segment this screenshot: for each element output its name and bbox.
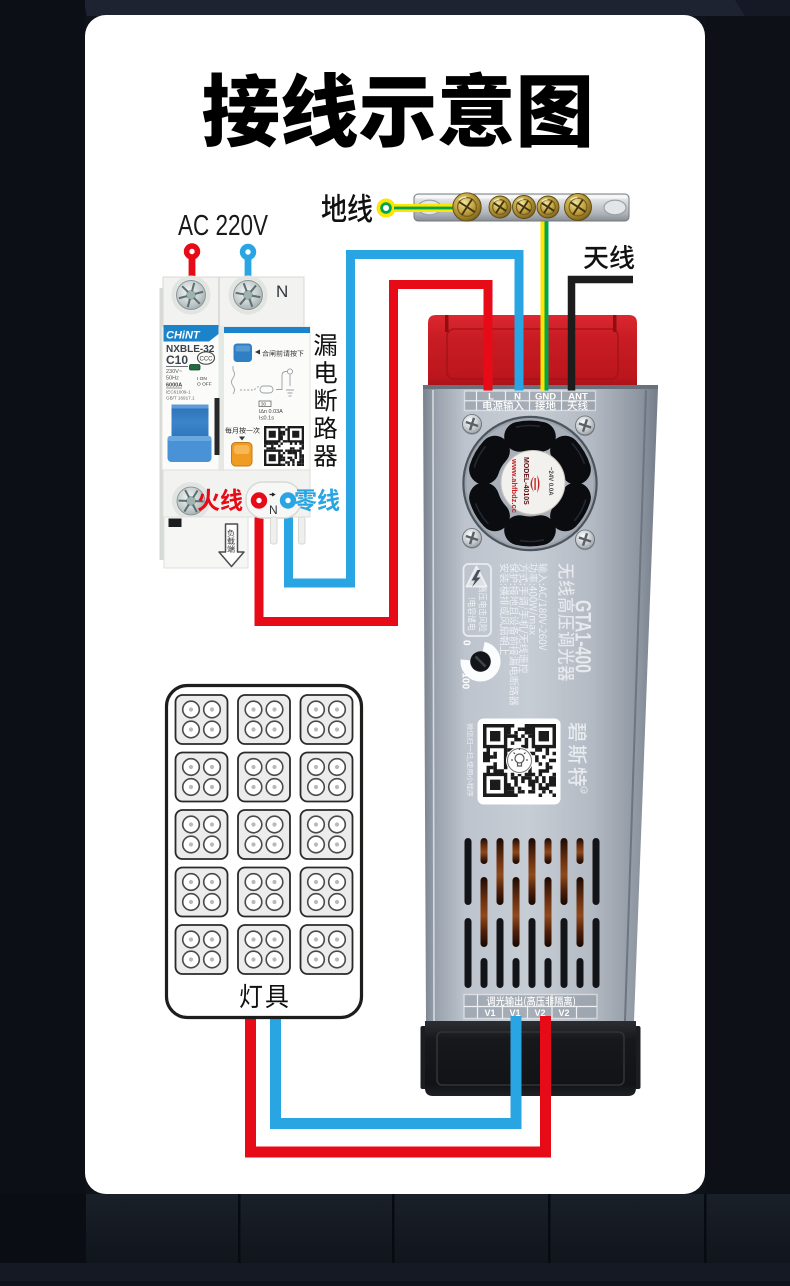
svg-text:I∆n 0.03A: I∆n 0.03A	[259, 409, 283, 415]
svg-text:GTA1-400: GTA1-400	[571, 600, 596, 673]
svg-text:N: N	[276, 282, 288, 301]
svg-text:100: 100	[460, 673, 471, 690]
svg-text:6000A: 6000A	[166, 383, 182, 389]
svg-text:C10: C10	[166, 353, 188, 367]
svg-text:0: 0	[461, 640, 472, 646]
svg-text:N: N	[269, 503, 278, 517]
svg-text:230V~: 230V~	[166, 369, 182, 375]
svg-text:V2: V2	[558, 1008, 569, 1018]
svg-text:N: N	[514, 392, 521, 403]
svg-text:AC 220V: AC 220V	[178, 210, 269, 242]
svg-text:V1: V1	[484, 1008, 495, 1018]
svg-text:50Hz: 50Hz	[166, 376, 179, 382]
svg-text:MODEL-4010S: MODEL-4010S	[522, 457, 529, 505]
svg-text:L: L	[488, 392, 494, 403]
svg-text:IEC61009-1: IEC61009-1	[166, 390, 191, 395]
svg-text:O OFF: O OFF	[197, 382, 212, 388]
svg-text:CHiNT: CHiNT	[166, 330, 201, 342]
svg-text:I ON: I ON	[197, 376, 207, 382]
svg-text:www.ahfbdz.cc: www.ahfbdz.cc	[510, 458, 519, 513]
svg-text:~24V 0.0A: ~24V 0.0A	[547, 467, 553, 496]
svg-text:GB/T 16917.1: GB/T 16917.1	[166, 396, 195, 401]
svg-text:30: 30	[261, 402, 267, 407]
svg-text:I≤0.1s: I≤0.1s	[259, 416, 274, 422]
svg-text:CCC: CCC	[200, 357, 214, 363]
svg-text:ANT: ANT	[568, 392, 588, 403]
